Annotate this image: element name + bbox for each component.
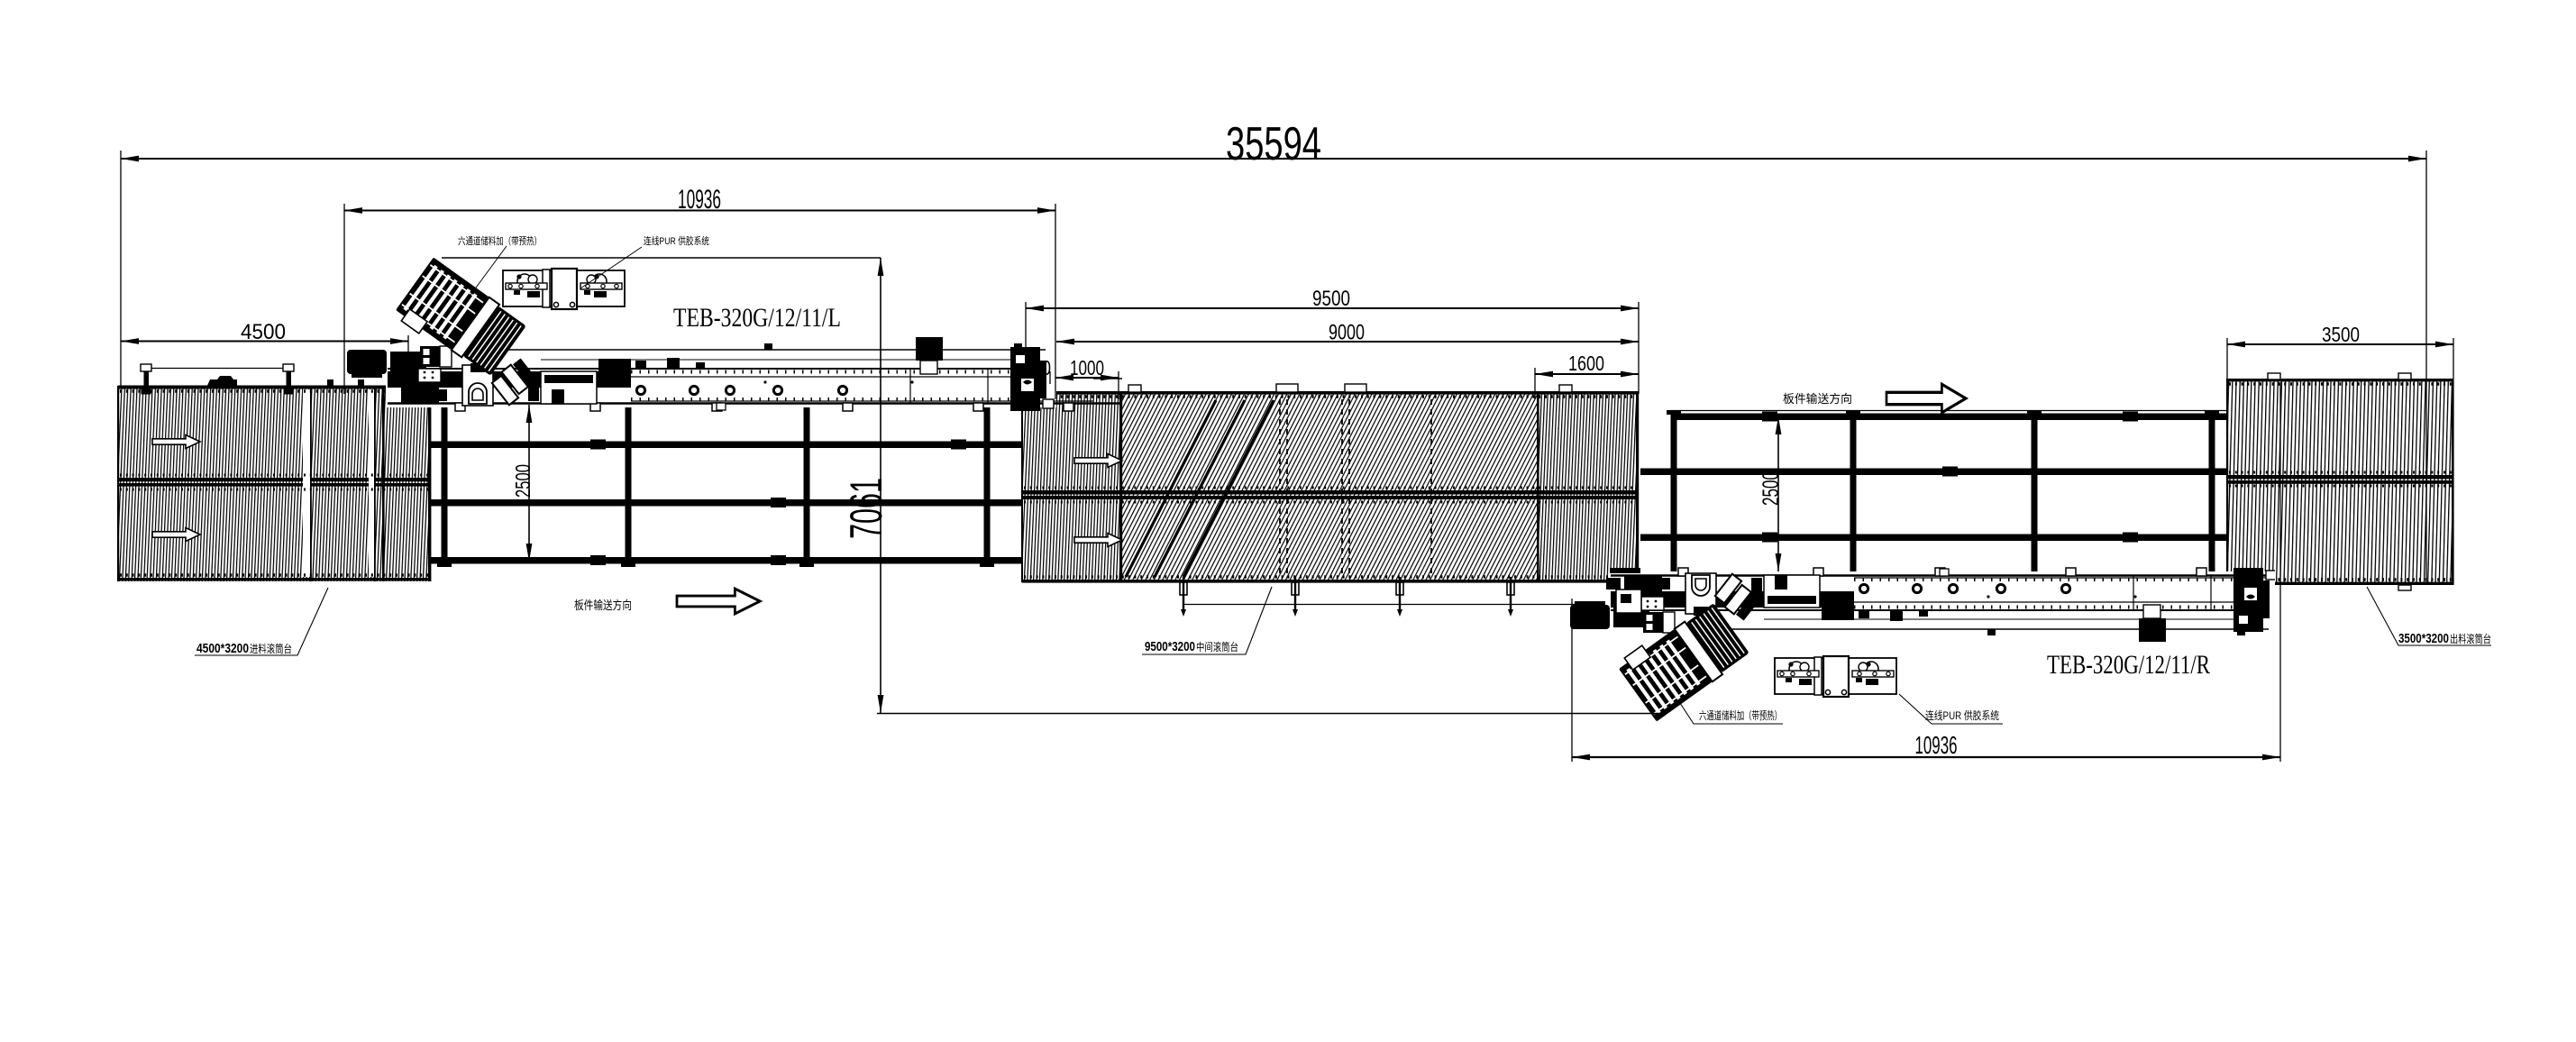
svg-text:2500: 2500 xyxy=(1758,471,1784,506)
svg-text:进料滚筒台: 进料滚筒台 xyxy=(250,642,292,655)
svg-text:板件输送方向: 板件输送方向 xyxy=(574,599,632,612)
svg-text:10936: 10936 xyxy=(678,185,721,215)
svg-text:10936: 10936 xyxy=(1915,731,1958,759)
svg-text:7061: 7061 xyxy=(841,478,891,539)
svg-text:3500: 3500 xyxy=(2322,323,2360,346)
svg-text:4500*3200: 4500*3200 xyxy=(196,642,249,656)
svg-text:六通道储料加（带预热）: 六通道储料加（带预热） xyxy=(1699,708,1782,722)
svg-text:4500: 4500 xyxy=(241,320,286,344)
svg-text:六通道储料加（带预热）: 六通道储料加（带预热） xyxy=(458,234,542,247)
svg-text:TEB-320G/12/11/R: TEB-320G/12/11/R xyxy=(2047,650,2210,680)
svg-text:9500: 9500 xyxy=(1312,287,1350,311)
svg-text:1000: 1000 xyxy=(1070,356,1104,379)
svg-text:9500*3200: 9500*3200 xyxy=(1145,640,1195,654)
svg-text:TEB-320G/12/11/L: TEB-320G/12/11/L xyxy=(673,303,841,333)
svg-text:35594: 35594 xyxy=(1226,118,1321,170)
svg-text:0: 0 xyxy=(1042,356,1051,379)
svg-text:连线PUR 供胶系统: 连线PUR 供胶系统 xyxy=(1925,708,1999,722)
svg-text:2500: 2500 xyxy=(511,464,534,498)
svg-text:出料滚筒台: 出料滚筒台 xyxy=(2450,632,2491,645)
svg-text:9000: 9000 xyxy=(1329,321,1365,345)
svg-text:1600: 1600 xyxy=(1568,352,1604,375)
svg-text:板件输送方向: 板件输送方向 xyxy=(1783,392,1852,406)
svg-text:中间滚筒台: 中间滚筒台 xyxy=(1196,640,1238,654)
svg-text:连线PUR 供胶系统: 连线PUR 供胶系统 xyxy=(644,234,709,247)
svg-text:3500*3200: 3500*3200 xyxy=(2398,632,2449,646)
